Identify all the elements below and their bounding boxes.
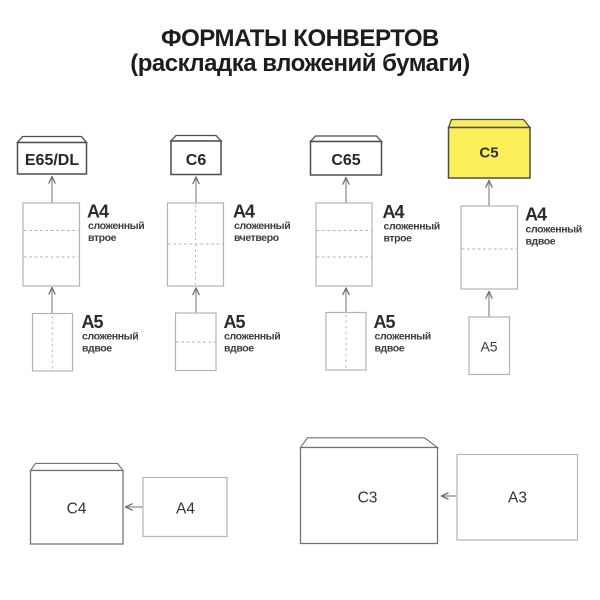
svg-text:сложенный: сложенный — [384, 221, 440, 233]
svg-text:вчетверо: вчетверо — [234, 232, 279, 244]
svg-text:сложенный: сложенный — [234, 220, 290, 232]
svg-text:А5: А5 — [224, 312, 246, 332]
svg-text:сложенный: сложенный — [526, 224, 582, 236]
svg-text:сложенный: сложенный — [82, 331, 138, 343]
svg-text:(раскладка вложений бумаги): (раскладка вложений бумаги) — [130, 50, 470, 77]
svg-text:сложенный: сложенный — [224, 331, 280, 343]
svg-text:вдвое: вдвое — [224, 342, 254, 354]
svg-text:C65: C65 — [331, 152, 360, 169]
svg-text:А5: А5 — [82, 312, 104, 332]
svg-text:вдвое: вдвое — [82, 342, 112, 354]
svg-text:ФОРМАТЫ КОНВЕРТОВ: ФОРМАТЫ КОНВЕРТОВ — [161, 25, 439, 52]
svg-text:А4: А4 — [233, 202, 255, 222]
svg-text:А3: А3 — [508, 490, 527, 507]
svg-text:А5: А5 — [480, 339, 497, 355]
svg-text:А4: А4 — [383, 202, 405, 222]
svg-text:C6: C6 — [186, 152, 207, 169]
svg-text:втрое: втрое — [384, 233, 413, 245]
svg-text:втрое: втрое — [88, 232, 117, 244]
svg-text:C5: C5 — [479, 145, 498, 162]
svg-text:E65/DL: E65/DL — [25, 152, 79, 169]
svg-text:А4: А4 — [87, 202, 109, 222]
svg-text:C3: C3 — [358, 490, 378, 507]
svg-text:вдвое: вдвое — [526, 235, 556, 247]
svg-text:А4: А4 — [176, 501, 195, 518]
svg-text:вдвое: вдвое — [375, 342, 405, 354]
svg-text:C4: C4 — [67, 501, 87, 518]
svg-text:сложенный: сложенный — [375, 331, 431, 343]
svg-text:сложенный: сложенный — [88, 220, 144, 232]
svg-text:А4: А4 — [525, 205, 547, 225]
svg-text:А5: А5 — [374, 312, 396, 332]
